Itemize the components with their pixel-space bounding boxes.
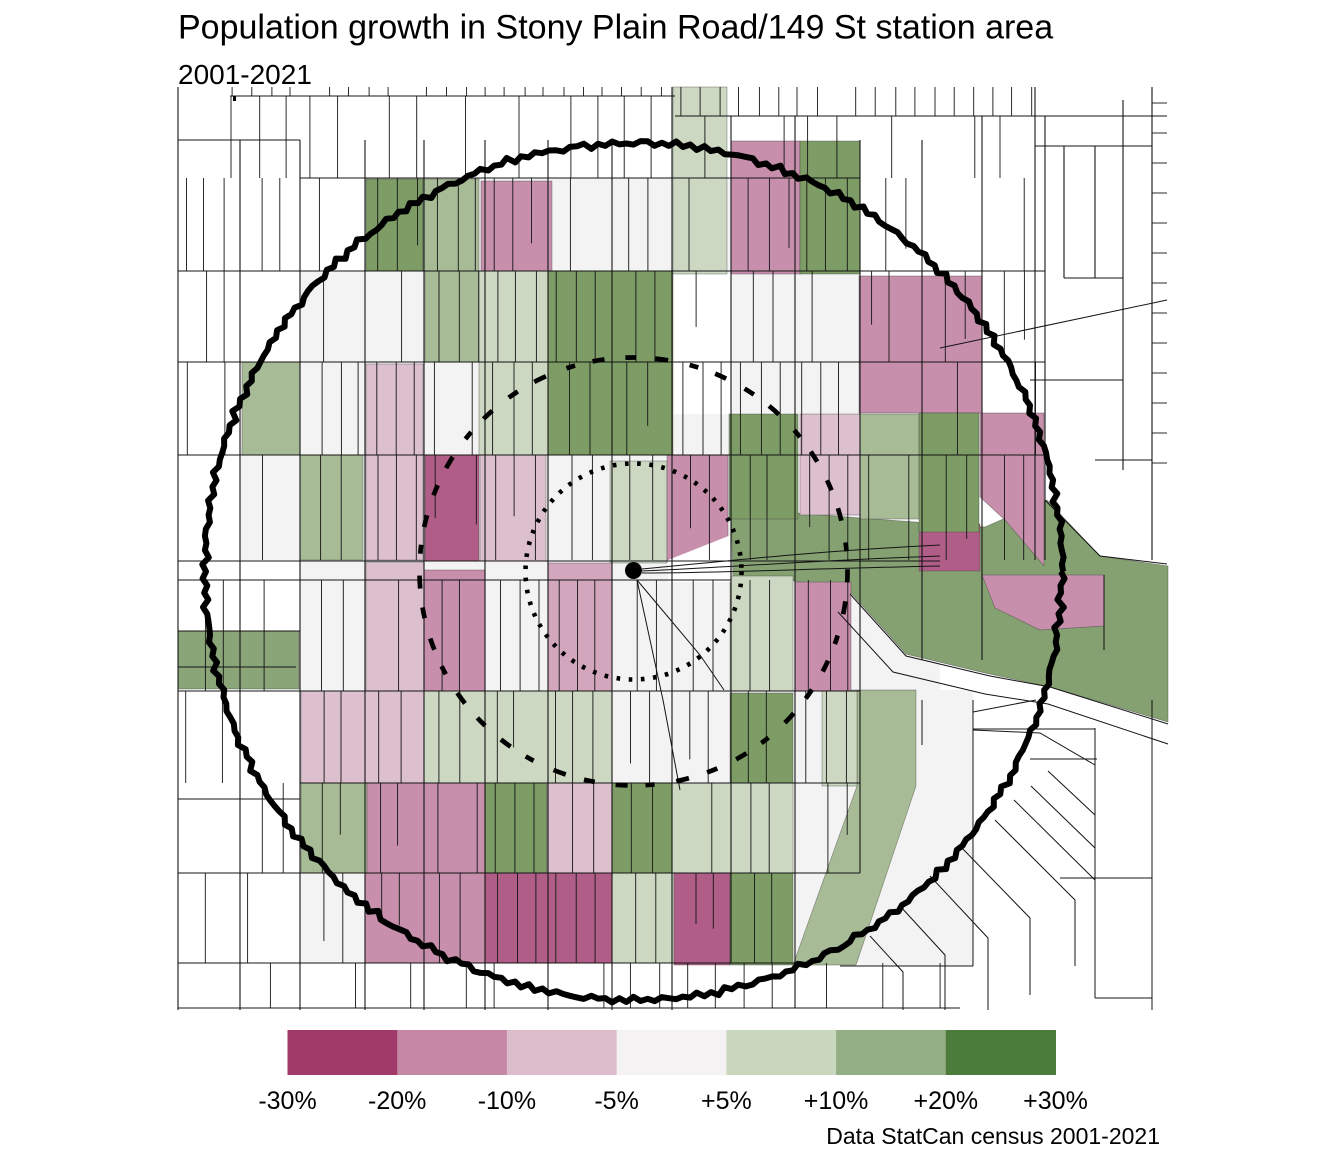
svg-text:+20%: +20% [913,1087,978,1115]
svg-text:+5%: +5% [701,1087,752,1115]
svg-text:Data StatCan census 2001-2021: Data StatCan census 2001-2021 [826,1123,1160,1149]
svg-text:-20%: -20% [368,1087,426,1115]
svg-text:+10%: +10% [804,1087,869,1115]
svg-text:Population growth in Stony Pla: Population growth in Stony Plain Road/14… [178,9,1053,47]
svg-text:-30%: -30% [258,1087,316,1115]
svg-text:2001-2021: 2001-2021 [178,59,312,90]
svg-text:-5%: -5% [594,1087,638,1115]
svg-text:+30%: +30% [1023,1087,1088,1115]
svg-text:-10%: -10% [478,1087,536,1115]
